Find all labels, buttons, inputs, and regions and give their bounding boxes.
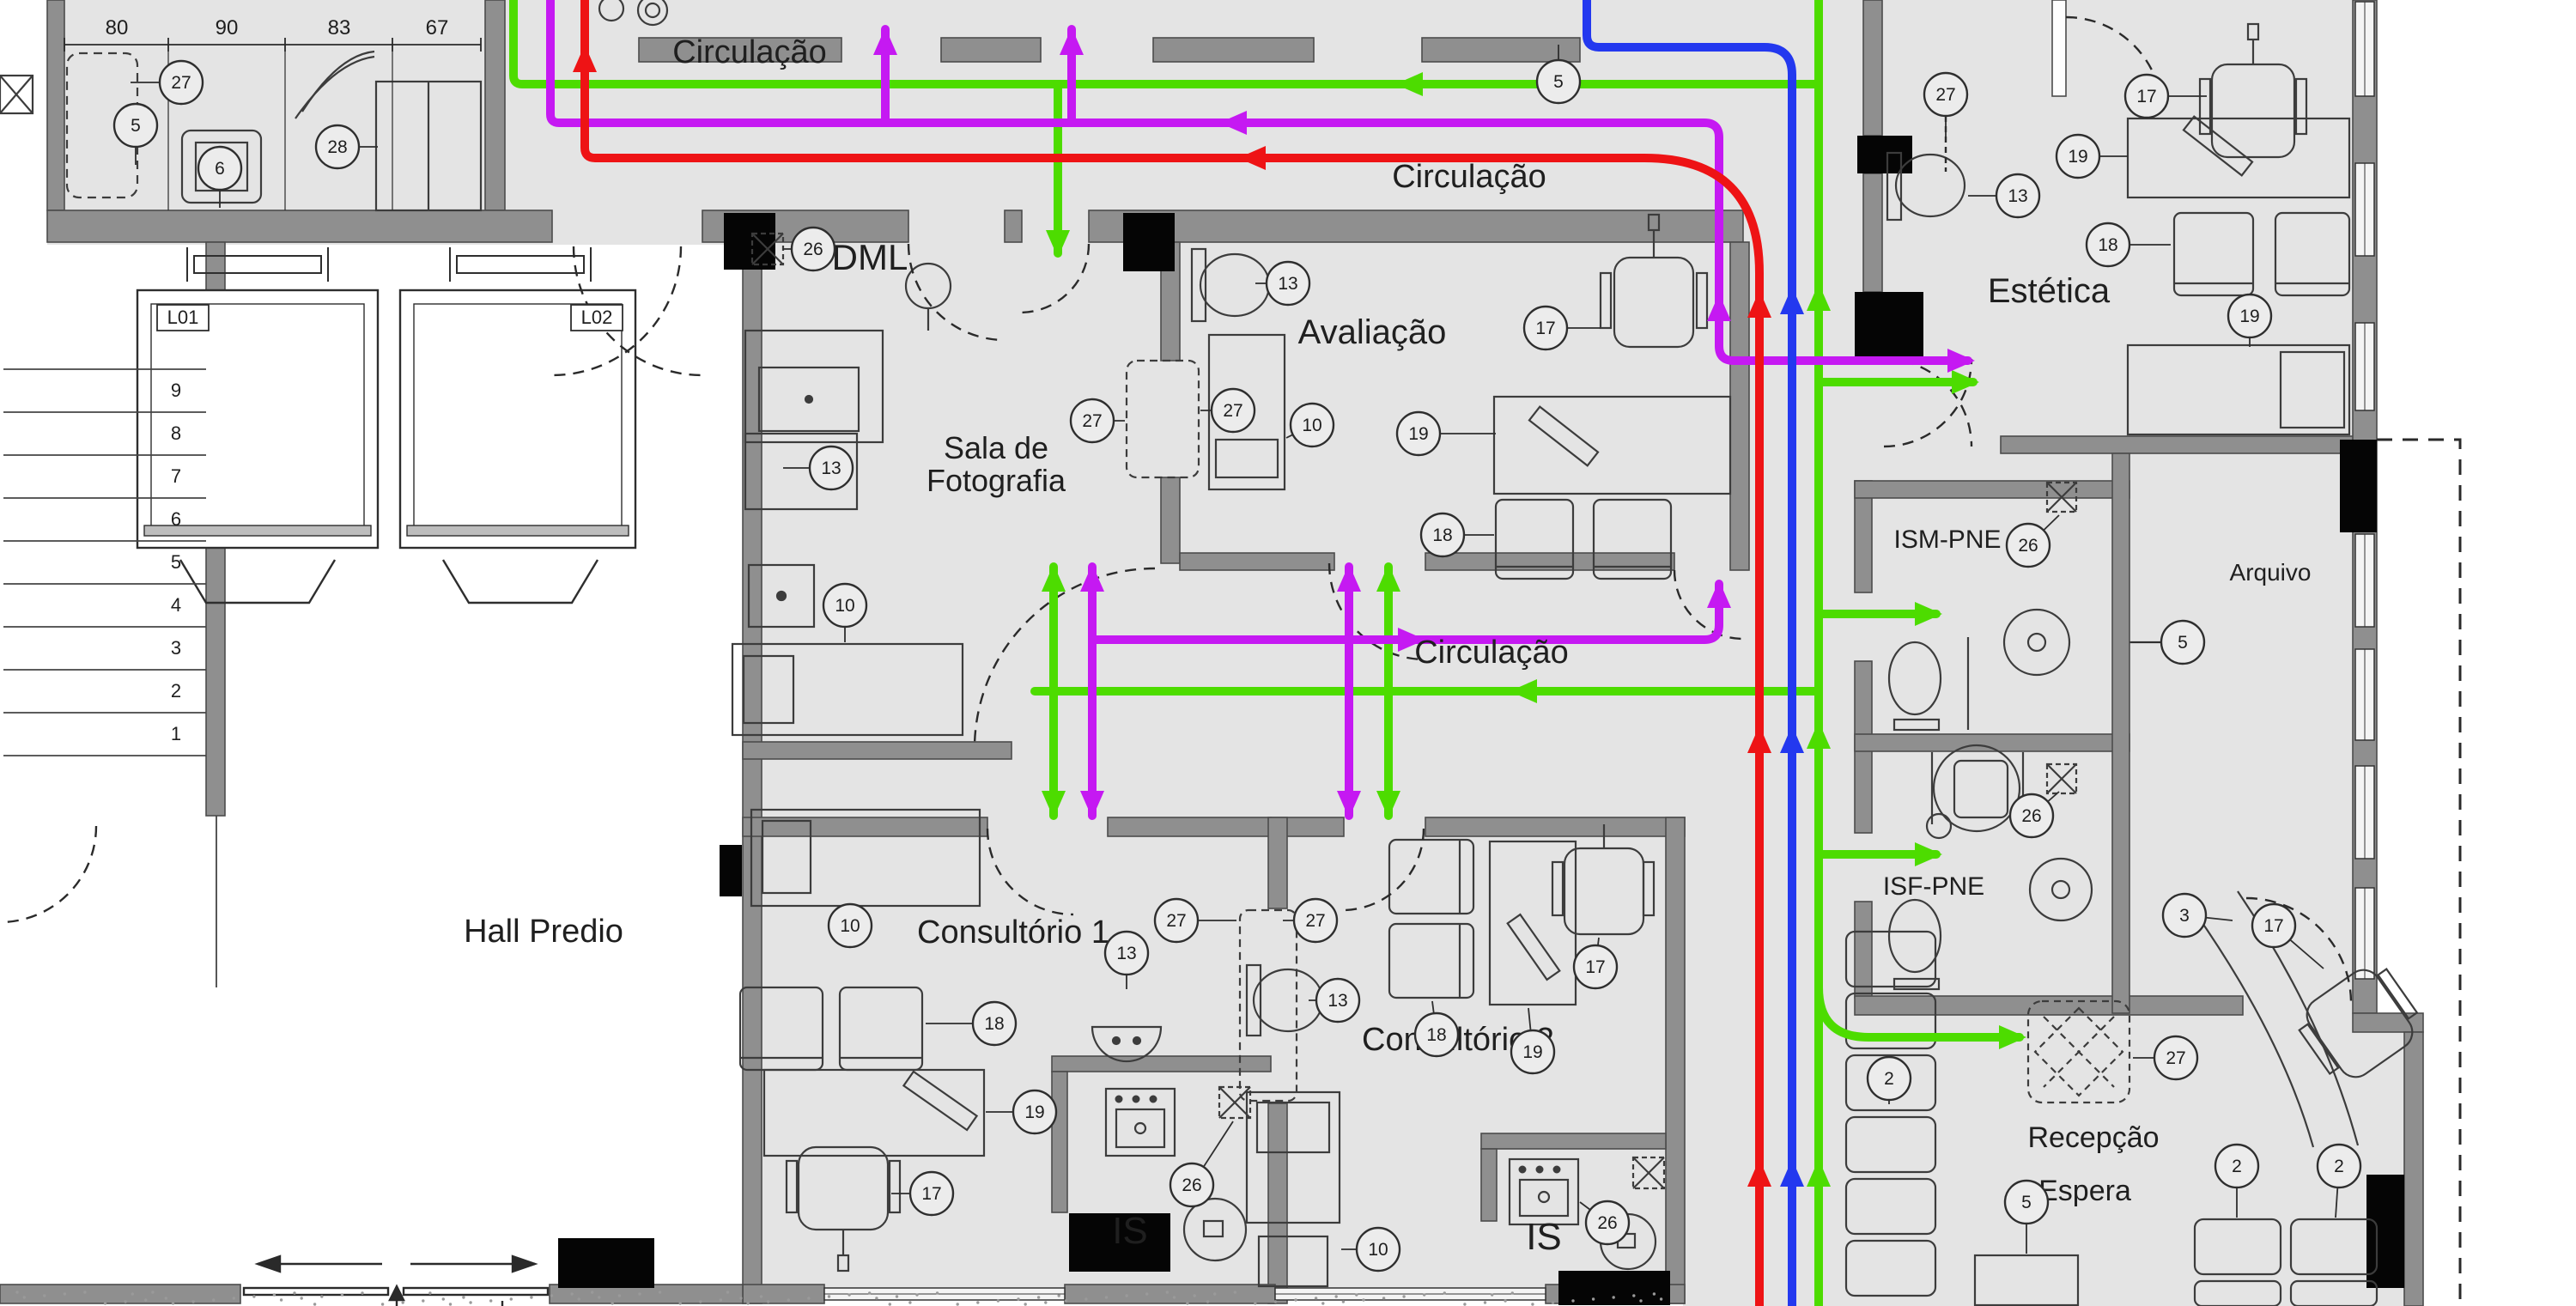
callout-number: 2 (2232, 1157, 2242, 1176)
stair-number: 2 (171, 680, 181, 702)
callout-number: 17 (2136, 87, 2156, 106)
callout-number: 5 (2178, 633, 2188, 653)
speckle (449, 1303, 452, 1305)
speckle (767, 1300, 769, 1303)
speckle (510, 1297, 513, 1300)
sliding-door-symbol (244, 1256, 548, 1306)
callout-number: 3 (2179, 906, 2190, 926)
speckle (233, 1297, 235, 1299)
speckle (530, 1296, 532, 1298)
speckle (611, 1302, 614, 1304)
speckle (1105, 1296, 1108, 1298)
speckle (273, 1293, 276, 1296)
speckle (875, 1297, 878, 1299)
callout-number: 19 (1522, 1042, 1542, 1062)
speckle (1254, 1302, 1256, 1304)
callout-number: 17 (1535, 319, 1555, 338)
speckle (1632, 1294, 1635, 1297)
callout-number: 19 (1408, 424, 1428, 444)
speckle (726, 1291, 729, 1293)
stair-number: 1 (171, 723, 181, 744)
speckle (1342, 1300, 1345, 1303)
speckle (848, 1293, 850, 1296)
callout-number: 13 (1116, 944, 1136, 963)
speckle (787, 1298, 790, 1301)
elevator-label: L02 (581, 307, 613, 328)
callout-number: 18 (1432, 525, 1452, 545)
speckle (760, 1295, 762, 1297)
callout-number: 13 (1327, 991, 1347, 1011)
callout-number: 27 (1082, 411, 1102, 431)
callout-number: 26 (2021, 806, 2041, 826)
callout-number: 27 (1223, 401, 1242, 421)
speckle (1213, 1292, 1216, 1295)
speckle (1065, 1299, 1067, 1302)
room-label: IS (1526, 1216, 1562, 1258)
speckle (957, 1303, 959, 1305)
callout-number: 17 (1585, 957, 1605, 977)
speckle (1653, 1292, 1656, 1295)
speckle (313, 1303, 316, 1305)
stair-number: 6 (171, 508, 181, 530)
speckle (381, 1303, 384, 1305)
speckle (720, 1298, 722, 1301)
callout-number: 10 (1368, 1240, 1388, 1260)
speckle (1058, 1294, 1060, 1297)
speckle (293, 1291, 295, 1294)
room-label: Circulação (1414, 635, 1569, 671)
speckle (165, 1297, 167, 1299)
speckle (936, 1291, 939, 1294)
speckle (172, 1302, 174, 1304)
callout-number: 6 (215, 159, 225, 179)
speckle (618, 1294, 621, 1297)
room-label: Circulação (1392, 159, 1546, 195)
callout-number: 17 (921, 1184, 941, 1204)
speckle (462, 1296, 465, 1298)
speckle (1125, 1294, 1127, 1297)
speckle (15, 1291, 18, 1293)
speckle (598, 1296, 600, 1298)
dimension-label: 83 (328, 16, 351, 39)
speckle (976, 1301, 979, 1303)
callout-number: 19 (1024, 1103, 1044, 1122)
dimension-label: 80 (106, 16, 129, 39)
speckle (402, 1301, 404, 1303)
speckle (1166, 1291, 1169, 1293)
callout-number: 27 (2166, 1048, 2185, 1068)
callout-number: 10 (840, 916, 860, 936)
speckle (1511, 1291, 1514, 1294)
speckle (699, 1300, 702, 1303)
callout-number: 2 (2334, 1157, 2344, 1176)
speckle (908, 1301, 911, 1303)
room-label: Espera (2038, 1175, 2131, 1207)
callout-number: 27 (1935, 85, 1955, 105)
room-label: Hall Predio (464, 914, 623, 950)
callout-number: 27 (1305, 911, 1325, 931)
speckle (896, 1295, 898, 1297)
speckle (591, 1291, 593, 1293)
speckle (1504, 1299, 1506, 1302)
callout-number: 19 (2068, 147, 2087, 167)
speckle (1145, 1292, 1148, 1295)
stair-number: 3 (171, 637, 181, 659)
speckle (1423, 1293, 1425, 1296)
callout-number: 26 (1182, 1175, 1201, 1195)
speckle (1274, 1300, 1277, 1303)
callout-number: 5 (2021, 1193, 2032, 1212)
room-label: IS (1112, 1210, 1148, 1252)
speckle (1173, 1296, 1176, 1298)
speckle (915, 1293, 918, 1296)
room-label: Avaliação (1298, 313, 1447, 351)
speckle (1044, 1301, 1047, 1303)
room-label: Estética (1988, 272, 2111, 310)
speckle (212, 1298, 215, 1301)
callout-number: 2 (1884, 1069, 1894, 1089)
speckle (1491, 1293, 1493, 1296)
speckle (191, 1300, 194, 1303)
speckle (1382, 1297, 1385, 1299)
speckle (1463, 1303, 1466, 1305)
speckle (64, 1292, 66, 1295)
callout-number: 26 (1597, 1213, 1617, 1233)
callout-number: 26 (2018, 536, 2038, 556)
speckle (889, 1303, 891, 1305)
speckle (1362, 1298, 1364, 1301)
stair-number: 8 (171, 422, 181, 444)
speckle (1294, 1298, 1297, 1301)
callout-number: 18 (2098, 235, 2117, 255)
speckle (807, 1297, 810, 1299)
speckle (1639, 1299, 1642, 1302)
stair-number: 5 (171, 551, 181, 573)
speckle (828, 1295, 830, 1297)
dimension-label: 90 (216, 16, 239, 39)
speckle (1592, 1297, 1595, 1300)
speckle (301, 1297, 303, 1299)
callout-number: 10 (835, 596, 854, 616)
callout-number: 10 (1302, 416, 1321, 435)
speckle (43, 1294, 46, 1297)
speckle (638, 1292, 641, 1295)
speckle (489, 1299, 492, 1302)
callout-number: 18 (1426, 1025, 1446, 1045)
callout-number: 27 (1166, 911, 1186, 931)
speckle (679, 1302, 682, 1304)
callout-number: 26 (803, 240, 823, 259)
speckle (1402, 1295, 1405, 1297)
speckle (1037, 1296, 1040, 1298)
speckle (1017, 1297, 1019, 1300)
dimension-label: 67 (426, 16, 449, 39)
callout: 10 (829, 904, 872, 947)
speckle (131, 1292, 134, 1295)
speckle (422, 1299, 424, 1302)
plan-canvas: 98765432180908367L01L02CirculaçãoCircula… (0, 0, 2576, 1306)
speckle (124, 1300, 126, 1303)
callout-number: 19 (2239, 307, 2259, 326)
floor-plan: { "plan_title": "Clinic floor plan with … (0, 0, 2576, 1306)
stair-number: 7 (171, 465, 181, 487)
speckle (1335, 1295, 1338, 1297)
room-label: Fotografia (927, 463, 1066, 498)
speckle (1613, 1296, 1615, 1298)
callout-number: 5 (131, 116, 141, 136)
room-label: Consultório 1 (917, 914, 1109, 951)
room-label: Circulação (672, 34, 827, 70)
callout-number: 13 (821, 459, 841, 478)
speckle (104, 1302, 106, 1304)
callout-number: 5 (1553, 72, 1564, 92)
speckle (252, 1295, 255, 1297)
speckle (1234, 1291, 1236, 1293)
speckle (1024, 1303, 1027, 1305)
speckle (151, 1291, 154, 1293)
speckle (469, 1301, 471, 1303)
room-label: ISF-PNE (1883, 872, 1984, 901)
speckle (1315, 1297, 1317, 1299)
speckle (550, 1294, 553, 1297)
room-label: ISM-PNE (1893, 525, 2001, 554)
callout-number: 18 (984, 1014, 1004, 1034)
speckle (570, 1292, 573, 1295)
elevator-label: L01 (167, 307, 199, 328)
room-label: Recepção (2027, 1121, 2159, 1154)
speckle (1443, 1291, 1446, 1294)
stair-number: 4 (171, 594, 181, 616)
room-label: Sala de (944, 430, 1048, 465)
speckle (1571, 1299, 1574, 1302)
speckle (746, 1302, 749, 1304)
callout-number: 13 (1278, 274, 1297, 294)
speckle (1355, 1293, 1358, 1296)
speckle (144, 1298, 147, 1301)
speckle (1552, 1301, 1554, 1303)
speckle (1206, 1300, 1209, 1303)
room-label: DML (832, 237, 908, 277)
callout-number: 17 (2263, 916, 2283, 936)
speckle (659, 1291, 661, 1293)
stair-number: 9 (171, 380, 181, 401)
speckle (428, 1291, 431, 1294)
speckle (868, 1291, 871, 1294)
speckle (1484, 1301, 1486, 1303)
speckle (1186, 1302, 1188, 1304)
speckle (341, 1293, 343, 1296)
speckle (739, 1297, 742, 1299)
speckle (23, 1296, 26, 1298)
speckle (320, 1295, 323, 1297)
speckle (578, 1297, 580, 1300)
callout-number: 27 (171, 73, 191, 93)
speckle (1321, 1302, 1324, 1304)
speckle (83, 1291, 86, 1293)
speckle (1084, 1297, 1087, 1300)
speckle (1660, 1297, 1662, 1300)
speckle (1531, 1303, 1534, 1305)
speckle (442, 1297, 445, 1300)
speckle (280, 1298, 283, 1301)
room-label: Arquivo (2230, 559, 2312, 586)
callout-number: 13 (2008, 186, 2027, 206)
speckle (1193, 1294, 1195, 1297)
speckle (997, 1299, 999, 1302)
callout-number: 28 (327, 137, 347, 157)
speckle (361, 1291, 363, 1294)
